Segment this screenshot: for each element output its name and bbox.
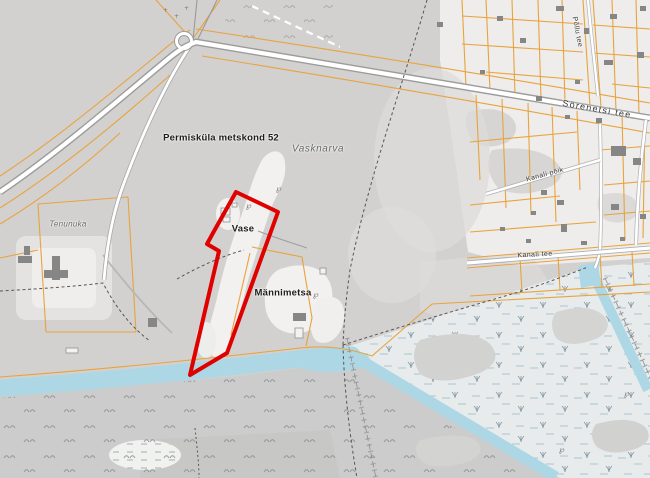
svg-text:℘: ℘ <box>276 184 282 193</box>
svg-text:℘: ℘ <box>246 201 252 210</box>
svg-text:℘: ℘ <box>624 389 630 398</box>
terrain-base <box>0 0 650 478</box>
svg-text:℘: ℘ <box>559 445 565 454</box>
svg-text:+: + <box>184 5 189 12</box>
map-canvas[interactable]: ℘℘ ℘℘ ℘ +++ <box>0 0 650 478</box>
svg-text:+: + <box>174 13 179 20</box>
svg-text:℘: ℘ <box>313 290 319 299</box>
svg-text:+: + <box>163 7 168 14</box>
map-viewport[interactable]: ℘℘ ℘℘ ℘ +++ Permisküla metskond 52 Vaskn… <box>0 0 650 478</box>
